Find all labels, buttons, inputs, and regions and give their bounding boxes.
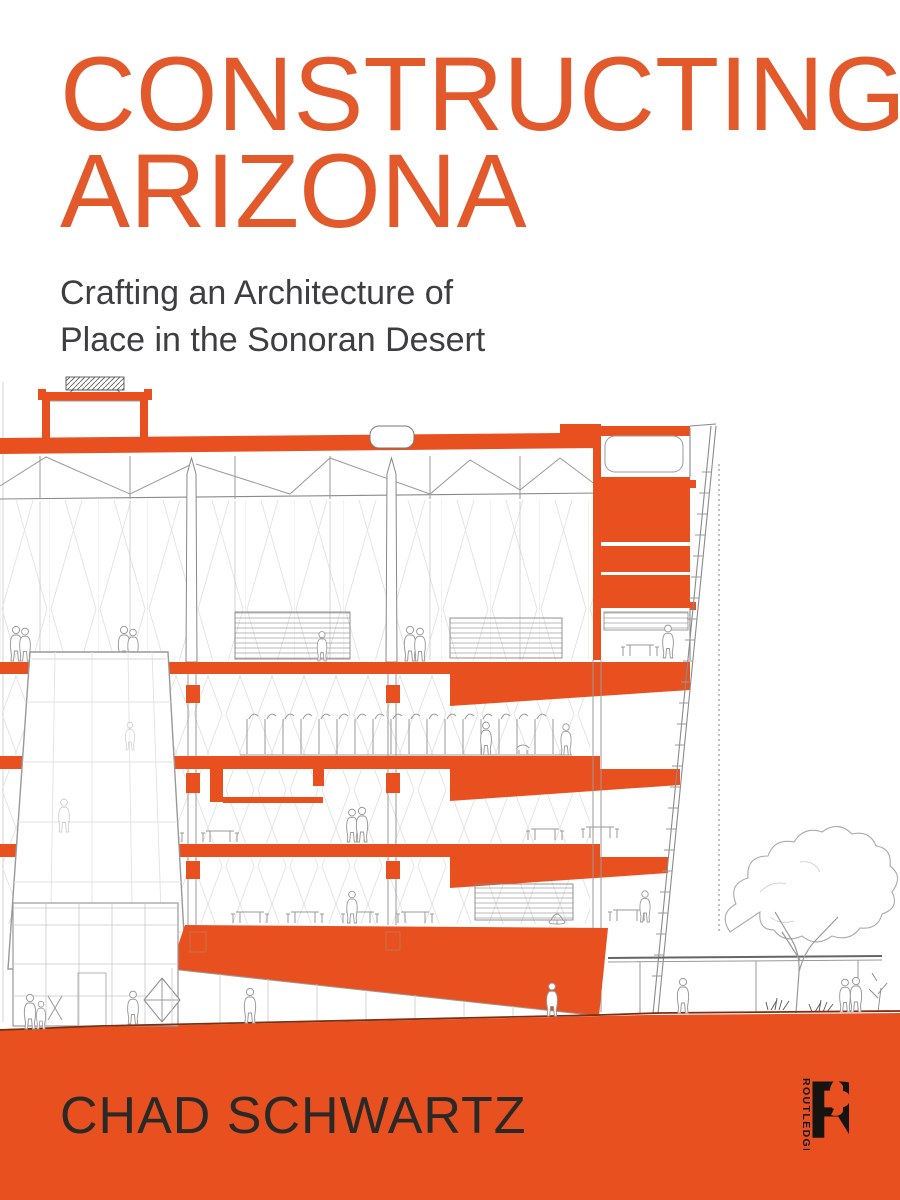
ground-slab bbox=[170, 925, 608, 1016]
roof-vent bbox=[370, 426, 414, 448]
title-block: CONSTRUCTING ARIZONA Crafting an Archite… bbox=[60, 46, 900, 364]
subtitle-line-1: Crafting an Architecture of bbox=[60, 270, 900, 317]
routledge-logo: ROUTLEDGE R bbox=[791, 1070, 849, 1150]
book-title-line-1: CONSTRUCTING bbox=[60, 46, 900, 143]
roof-truss bbox=[0, 456, 600, 499]
book-cover: CONSTRUCTING ARIZONA Crafting an Archite… bbox=[0, 0, 900, 1200]
building-section-illustration bbox=[0, 372, 900, 1040]
roof-slab bbox=[0, 424, 601, 454]
service-core bbox=[593, 426, 696, 1012]
author-name: CHAD SCHWARTZ bbox=[60, 1086, 527, 1146]
street-pavilion bbox=[13, 903, 180, 1026]
book-subtitle: Crafting an Architecture of Place in the… bbox=[60, 270, 900, 364]
subtitle-line-2: Place in the Sonoran Desert bbox=[60, 317, 900, 364]
roof-penthouse bbox=[38, 377, 152, 439]
book-title-line-2: ARIZONA bbox=[60, 143, 900, 240]
routledge-logo-icon: ROUTLEDGE R bbox=[791, 1070, 849, 1150]
